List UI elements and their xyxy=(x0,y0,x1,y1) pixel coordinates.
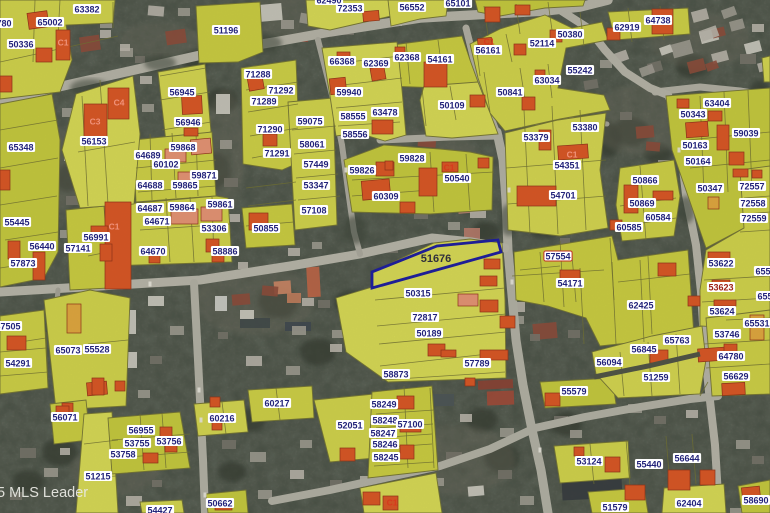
svg-text:56845: 56845 xyxy=(631,344,656,354)
svg-text:64780: 64780 xyxy=(718,351,743,361)
svg-text:59861: 59861 xyxy=(207,199,232,209)
svg-text:58555: 58555 xyxy=(340,111,365,121)
svg-text:64738: 64738 xyxy=(645,15,670,25)
svg-text:58873: 58873 xyxy=(383,369,408,379)
svg-text:53124: 53124 xyxy=(576,456,601,466)
svg-text:58246: 58246 xyxy=(372,439,397,449)
svg-text:60217: 60217 xyxy=(264,398,289,408)
svg-text:51196: 51196 xyxy=(214,25,239,35)
svg-text:72817: 72817 xyxy=(412,312,437,322)
svg-text:50164: 50164 xyxy=(685,156,710,166)
svg-text:62425: 62425 xyxy=(628,300,653,310)
svg-text:56552: 56552 xyxy=(399,2,424,12)
svg-text:56991: 56991 xyxy=(83,232,108,242)
svg-text:57873: 57873 xyxy=(10,258,35,268)
svg-text:53380: 53380 xyxy=(572,122,597,132)
svg-text:56945: 56945 xyxy=(169,87,194,97)
svg-text:57100: 57100 xyxy=(397,419,422,429)
svg-text:59075: 59075 xyxy=(297,116,322,126)
svg-text:57141: 57141 xyxy=(65,243,90,253)
svg-text:50540: 50540 xyxy=(444,173,469,183)
svg-text:56094: 56094 xyxy=(596,357,621,367)
svg-text:59039: 59039 xyxy=(733,128,758,138)
svg-text:54701: 54701 xyxy=(550,190,575,200)
svg-text:65763: 65763 xyxy=(664,335,689,345)
svg-text:62490: 62490 xyxy=(316,0,341,5)
svg-text:59864: 59864 xyxy=(169,202,194,212)
svg-text:C1: C1 xyxy=(387,497,398,507)
svg-text:58690: 58690 xyxy=(743,495,768,505)
svg-text:58247: 58247 xyxy=(370,428,395,438)
svg-text:64670: 64670 xyxy=(140,246,165,256)
svg-text:59828: 59828 xyxy=(399,153,424,163)
svg-text:59868: 59868 xyxy=(170,142,195,152)
svg-text:55242: 55242 xyxy=(567,65,592,75)
svg-text:50662: 50662 xyxy=(207,498,232,508)
svg-text:50841: 50841 xyxy=(497,87,522,97)
svg-text:60216: 60216 xyxy=(209,413,234,423)
svg-text:53758: 53758 xyxy=(110,449,135,459)
svg-text:65348: 65348 xyxy=(8,142,33,152)
svg-text:59940: 59940 xyxy=(336,87,361,97)
svg-text:50189: 50189 xyxy=(416,328,441,338)
svg-text:59826: 59826 xyxy=(349,165,374,175)
svg-text:50336: 50336 xyxy=(8,39,33,49)
svg-text:53624: 53624 xyxy=(709,306,734,316)
svg-text:60584: 60584 xyxy=(645,212,670,222)
svg-text:55440: 55440 xyxy=(636,459,661,469)
svg-text:50347: 50347 xyxy=(697,183,722,193)
svg-text:50109: 50109 xyxy=(439,100,464,110)
svg-text:65002: 65002 xyxy=(37,17,62,27)
svg-text:72558: 72558 xyxy=(740,198,765,208)
svg-text:51579: 51579 xyxy=(602,502,627,512)
svg-text:71290: 71290 xyxy=(257,124,282,134)
svg-text:67505: 67505 xyxy=(0,321,21,331)
svg-text:72557: 72557 xyxy=(739,181,764,191)
svg-text:C1: C1 xyxy=(567,149,578,159)
svg-text:60102: 60102 xyxy=(153,159,178,169)
svg-text:50163: 50163 xyxy=(682,140,707,150)
svg-text:58556: 58556 xyxy=(342,129,367,139)
svg-text:50380: 50380 xyxy=(557,29,582,39)
svg-text:62404: 62404 xyxy=(676,498,701,508)
svg-text:56629: 56629 xyxy=(723,371,748,381)
svg-text:53306: 53306 xyxy=(201,223,226,233)
svg-text:51215: 51215 xyxy=(85,471,110,481)
svg-text:50343: 50343 xyxy=(680,109,705,119)
svg-text:63404: 63404 xyxy=(704,98,729,108)
svg-text:60585: 60585 xyxy=(616,222,641,232)
svg-text:60309: 60309 xyxy=(373,191,398,201)
svg-text:780: 780 xyxy=(0,18,12,28)
svg-text:58245: 58245 xyxy=(373,452,398,462)
svg-text:56161: 56161 xyxy=(475,45,500,55)
svg-text:65531: 65531 xyxy=(744,318,769,328)
svg-text:54351: 54351 xyxy=(554,160,579,170)
svg-text:50869: 50869 xyxy=(629,198,654,208)
svg-text:58886: 58886 xyxy=(212,246,237,256)
svg-text:65073: 65073 xyxy=(55,345,80,355)
svg-text:50315: 50315 xyxy=(405,288,430,298)
svg-text:72559: 72559 xyxy=(741,213,766,223)
svg-text:52051: 52051 xyxy=(337,420,362,430)
svg-text:56946: 56946 xyxy=(175,117,200,127)
svg-text:54161: 54161 xyxy=(427,54,452,64)
svg-text:53756: 53756 xyxy=(156,436,181,446)
svg-text:56644: 56644 xyxy=(674,453,699,463)
svg-text:63034: 63034 xyxy=(534,75,559,85)
svg-text:62919: 62919 xyxy=(614,22,639,32)
svg-text:59865: 59865 xyxy=(172,180,197,190)
svg-text:55528: 55528 xyxy=(84,344,109,354)
svg-text:58248: 58248 xyxy=(372,415,397,425)
svg-text:56955: 56955 xyxy=(128,425,153,435)
svg-text:53347: 53347 xyxy=(303,180,328,190)
svg-text:71289: 71289 xyxy=(251,96,276,106)
svg-text:C1: C1 xyxy=(484,36,495,46)
svg-text:C1: C1 xyxy=(109,221,120,231)
svg-text:65532: 65532 xyxy=(755,266,770,276)
svg-text:56153: 56153 xyxy=(81,136,106,146)
svg-text:54291: 54291 xyxy=(5,358,30,368)
svg-text:51676: 51676 xyxy=(421,253,452,265)
svg-text:62369: 62369 xyxy=(363,58,388,68)
svg-text:50866: 50866 xyxy=(632,175,657,185)
svg-text:57108: 57108 xyxy=(301,205,326,215)
svg-text:54427: 54427 xyxy=(147,505,172,513)
svg-text:52114: 52114 xyxy=(530,38,555,48)
svg-text:59871: 59871 xyxy=(191,170,216,180)
svg-text:57449: 57449 xyxy=(303,159,328,169)
svg-text:C4: C4 xyxy=(114,97,125,107)
svg-text:65533: 65533 xyxy=(757,291,770,301)
svg-text:53623: 53623 xyxy=(708,282,733,292)
svg-text:66368: 66368 xyxy=(329,56,354,66)
svg-text:58249: 58249 xyxy=(371,399,396,409)
svg-text:57554: 57554 xyxy=(545,251,570,261)
svg-text:63382: 63382 xyxy=(74,4,99,14)
svg-text:C1: C1 xyxy=(444,162,455,172)
svg-text:56440: 56440 xyxy=(29,241,54,251)
svg-text:53379: 53379 xyxy=(523,132,548,142)
svg-text:57789: 57789 xyxy=(464,358,489,368)
svg-text:53746: 53746 xyxy=(714,329,739,339)
svg-text:56071: 56071 xyxy=(52,412,77,422)
svg-text:5 MLS Leader: 5 MLS Leader xyxy=(0,485,88,501)
svg-text:63478: 63478 xyxy=(372,107,397,117)
svg-text:55579: 55579 xyxy=(561,386,586,396)
svg-text:71291: 71291 xyxy=(264,148,289,158)
svg-text:55445: 55445 xyxy=(4,217,29,227)
svg-text:53755: 53755 xyxy=(124,438,149,448)
svg-text:50855: 50855 xyxy=(253,223,278,233)
svg-text:54171: 54171 xyxy=(557,278,582,288)
svg-text:71292: 71292 xyxy=(268,85,293,95)
svg-text:71288: 71288 xyxy=(245,69,270,79)
svg-text:53622: 53622 xyxy=(708,258,733,268)
svg-text:64671: 64671 xyxy=(144,216,169,226)
svg-text:64688: 64688 xyxy=(137,180,162,190)
svg-text:58061: 58061 xyxy=(299,139,324,149)
svg-text:51259: 51259 xyxy=(643,372,668,382)
svg-text:C1: C1 xyxy=(58,37,69,47)
svg-text:64687: 64687 xyxy=(137,203,162,213)
svg-text:65101: 65101 xyxy=(445,0,470,8)
svg-text:62368: 62368 xyxy=(394,52,419,62)
svg-text:C3: C3 xyxy=(90,116,101,126)
